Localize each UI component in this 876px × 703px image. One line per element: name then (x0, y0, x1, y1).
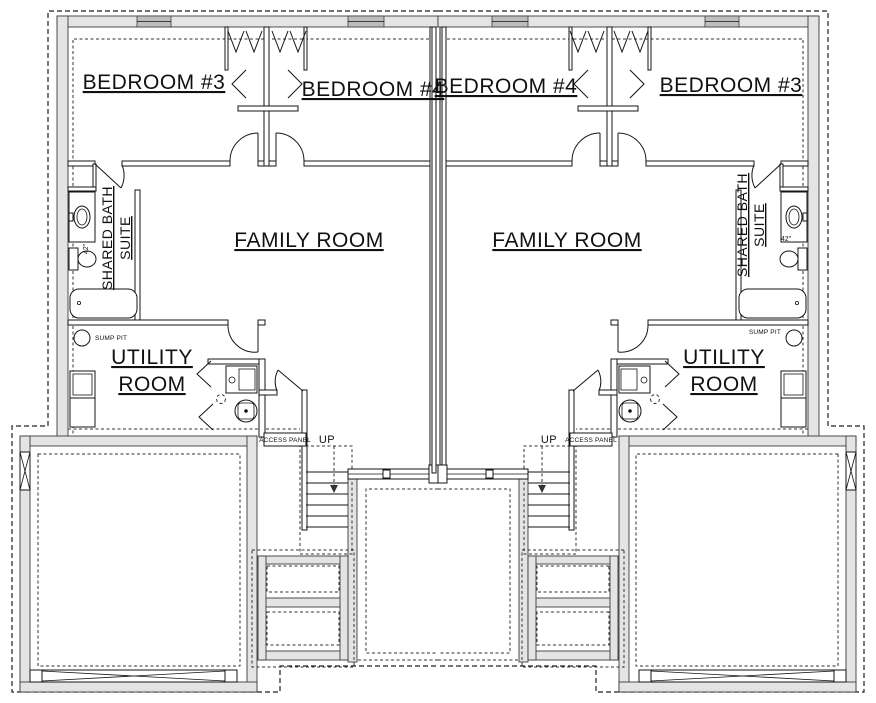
label-vanity-width-left: 42" (83, 243, 90, 254)
label-utility-left-line1: UTILITY (111, 346, 193, 369)
staircase (306, 446, 348, 527)
label-utility-right-line2: ROOM (690, 373, 757, 396)
label-vanity-width-right: 42" (781, 236, 792, 243)
linen-wall-bottom (68, 187, 96, 191)
linen-wall-right (93, 164, 96, 190)
label-access-panel-right: ACCESS PANEL (565, 437, 617, 444)
hall-door-leaf (278, 370, 303, 391)
plenum-chevron-lower (199, 404, 213, 430)
water-softener-upper (70, 371, 95, 398)
unit-right-graphics (432, 11, 864, 692)
porch-beam-hanger (383, 470, 390, 478)
hall-door-arc (275, 370, 278, 391)
floor-plan-page: BEDROOM #3 BEDROOM #4 BEDROOM #4 BEDROOM… (0, 0, 876, 703)
toilet-tank (69, 248, 78, 270)
furnace-center-dot (244, 409, 248, 413)
bifold-left-a (228, 31, 244, 52)
stair-direction-arrowhead (330, 485, 338, 493)
sink-faucet (69, 213, 73, 221)
closet-side-wall-left (225, 27, 228, 70)
closet-center-wall (264, 27, 269, 166)
stairwell-dash (300, 446, 352, 554)
bedroom-wall-seg2 (122, 161, 230, 166)
water-heater (226, 366, 257, 393)
pier-wall-mid (258, 598, 348, 607)
pier-wall-top (258, 556, 348, 564)
label-up-left: UP (319, 434, 335, 446)
label-family-room-left: FAMILY ROOM (234, 229, 383, 252)
label-utility-left-line2: ROOM (118, 373, 185, 396)
bedroom3-door-arc (230, 133, 258, 161)
pier-wall-right (340, 556, 348, 660)
utility-door-arc (228, 325, 258, 352)
floor-plan-drawing: BEDROOM #3 BEDROOM #4 BEDROOM #4 BEDROOM… (0, 0, 876, 703)
label-utility-right-line1: UTILITY (683, 346, 765, 369)
plenum-chevron-upper (197, 361, 211, 387)
garage-header-block-left (30, 670, 42, 682)
pier-wall-left (258, 556, 266, 660)
foundation-walls (20, 16, 438, 692)
stairwell-wall (302, 390, 307, 530)
closet-chevron-right (288, 70, 302, 98)
bath-door-leaf (95, 164, 121, 188)
water-softener-lower (70, 398, 95, 427)
utility-closet-wall-top (208, 359, 265, 364)
label-bedroom3-right: BEDROOM #3 (660, 74, 803, 97)
bathtub (70, 289, 137, 318)
pier-cell1-dash (267, 566, 339, 592)
garage-details (20, 452, 237, 682)
closet-chevron-left (232, 70, 246, 98)
porch-footing-dash (366, 489, 438, 653)
label-shared-bath-left-line2: SUITE (117, 216, 133, 260)
bedroom-wall-seg1 (68, 161, 95, 166)
property-overhang-dashed-line (12, 11, 438, 692)
utility-closet-wall-right (259, 359, 265, 437)
family-wall-seg1 (68, 320, 228, 325)
porch-structure (348, 465, 438, 483)
footing-dashed-lines (38, 39, 438, 667)
foundation-wall-left (57, 16, 68, 440)
label-bedroom4-left: BEDROOM #4 (302, 78, 445, 101)
bath-door-arc (121, 165, 124, 188)
label-shared-bath-right-line2: SUITE (751, 203, 767, 247)
pier-cell2-dash (267, 612, 339, 645)
bedroom-wall-seg4 (304, 161, 430, 166)
hall-wall-horizontal (259, 390, 277, 395)
label-bedroom3-left: BEDROOM #3 (83, 71, 226, 94)
label-shared-bath-right-line1: SHARED BATH (734, 173, 750, 277)
family-wall-seg2 (258, 320, 265, 325)
garage-wall-bottom (20, 682, 257, 692)
label-bedroom4-right: BEDROOM #4 (435, 75, 578, 98)
pier-wall-bottom (258, 651, 348, 660)
floor-drain (217, 395, 226, 404)
label-up-right: UP (541, 434, 557, 446)
label-shared-bath-left-line1: SHARED BATH (99, 186, 115, 290)
label-sump-pit-left: SUMP PIT (95, 335, 127, 342)
bifold-right-a (272, 31, 288, 52)
garage-header-block-right (225, 670, 237, 682)
closet-tee-wall (238, 106, 298, 111)
label-access-panel-left: ACCESS PANEL (259, 437, 311, 444)
label-family-room-right: FAMILY ROOM (492, 229, 641, 252)
bedroom4-door-arc (276, 133, 304, 161)
sump-pit-circle (74, 330, 90, 346)
label-sump-pit-right: SUMP PIT (749, 329, 781, 336)
garage-footing-dash (38, 454, 240, 666)
bifold-left-b (246, 31, 262, 52)
garage-wall-top (20, 436, 257, 446)
unit-left-graphics (12, 11, 444, 692)
